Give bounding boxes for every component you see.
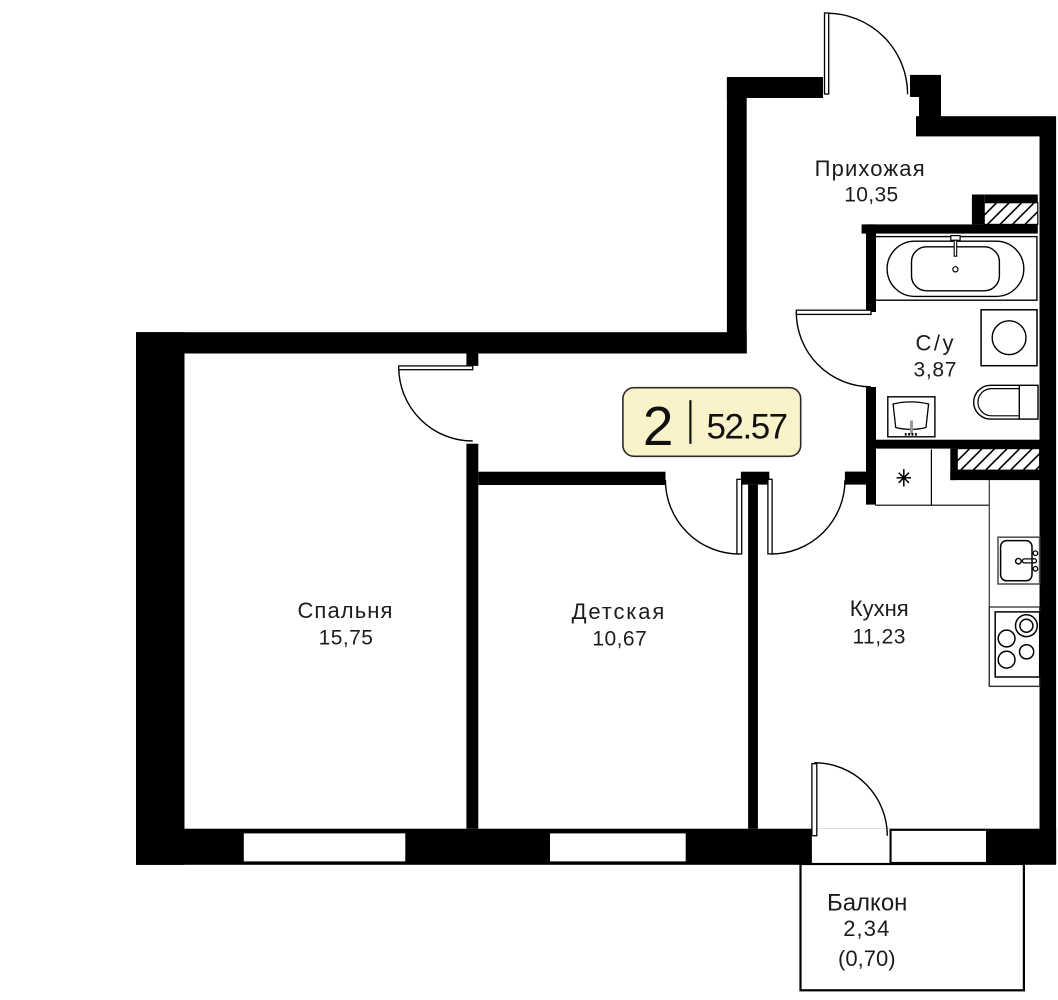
- svg-text:Детская: Детская: [572, 599, 666, 624]
- svg-text:52.57: 52.57: [707, 408, 787, 447]
- svg-text:3,87: 3,87: [913, 359, 957, 382]
- svg-text:2,34: 2,34: [843, 916, 890, 941]
- svg-text:Спальня: Спальня: [297, 598, 393, 623]
- svg-text:11,23: 11,23: [852, 626, 906, 649]
- svg-text:Прихожая: Прихожая: [815, 156, 926, 181]
- svg-text:2: 2: [643, 395, 674, 457]
- svg-text:Балкон: Балкон: [827, 889, 907, 916]
- svg-text:С/у: С/у: [916, 331, 957, 356]
- svg-text:(0,70): (0,70): [838, 946, 895, 971]
- svg-text:10,35: 10,35: [844, 184, 898, 207]
- svg-text:15,75: 15,75: [319, 626, 374, 649]
- svg-text:Кухня: Кухня: [850, 596, 909, 621]
- svg-text:10,67: 10,67: [592, 627, 647, 650]
